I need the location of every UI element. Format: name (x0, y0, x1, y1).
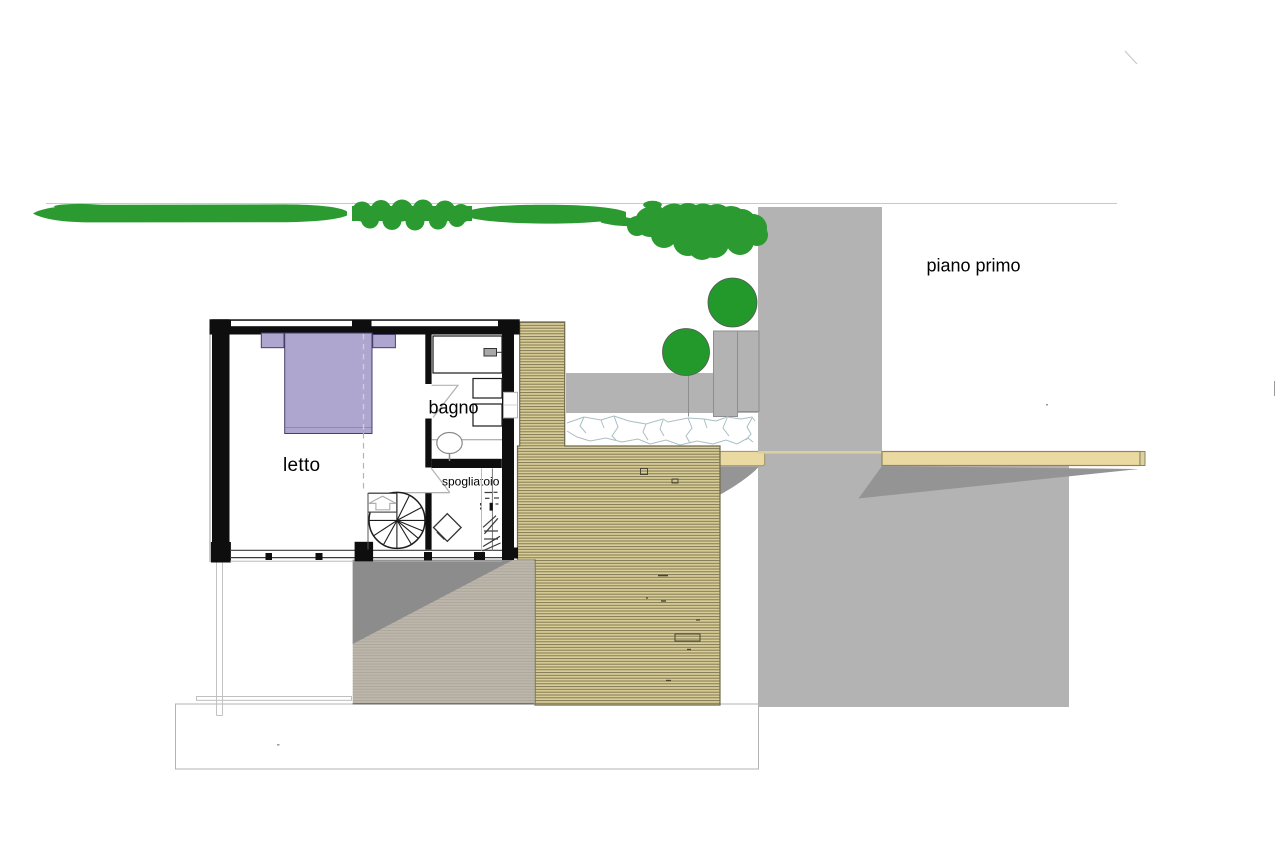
svg-text:bagno: bagno (429, 398, 479, 418)
svg-text:piano primo: piano primo (927, 256, 1021, 276)
svg-text:spogliatoio: spogliatoio (442, 475, 500, 489)
svg-text:letto: letto (283, 455, 320, 476)
